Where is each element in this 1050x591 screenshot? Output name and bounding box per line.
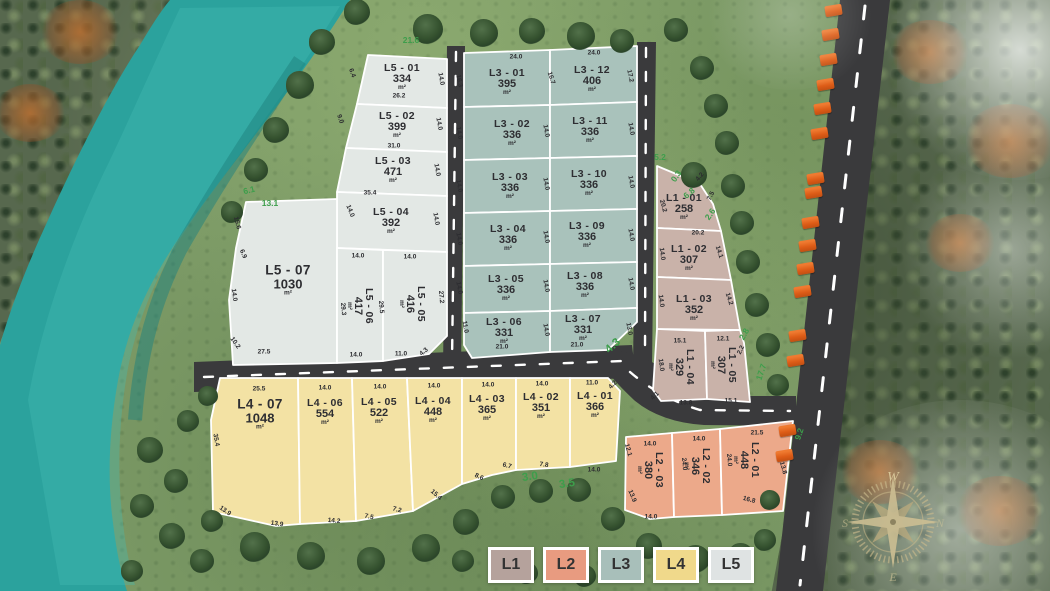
- dimension-label: 14.0: [454, 232, 463, 246]
- legend-item-L4: L4: [653, 547, 699, 583]
- dimension-label: 13.9: [218, 505, 232, 518]
- lot-label-L3-08: L3 - 08336m²: [567, 271, 603, 299]
- dimension-label: 14.0: [431, 212, 440, 226]
- dimension-label: 14.0: [541, 230, 550, 244]
- dimension-label: 13.8: [778, 461, 788, 475]
- dimension-label: 14.0: [536, 381, 549, 388]
- lot-label-L5-05: L5 - 05416m²: [398, 286, 426, 322]
- dimension-label: 24.0: [588, 50, 601, 57]
- dimension-label: 14.0: [588, 467, 601, 474]
- lot-label-L3-02: L3 - 02336m²: [494, 119, 530, 147]
- dimension-label: 14.0: [428, 383, 441, 390]
- dimension-label: 7.2: [392, 505, 403, 514]
- legend-label: L1: [502, 556, 521, 574]
- dimension-label: 8.6: [473, 472, 484, 482]
- dimension-label: 3.5: [558, 477, 576, 491]
- lot-label-L2-01: L2 - 01448m²: [732, 442, 760, 478]
- dimension-label: 7.8: [539, 461, 549, 469]
- dimension-label: 14.0: [350, 352, 363, 359]
- dimension-label: 35.4: [364, 190, 377, 197]
- dimension-label: 10.2: [229, 336, 242, 350]
- dimension-label: 21.5: [751, 430, 764, 437]
- dimension-label: 35.4: [211, 433, 220, 447]
- lot-label-L3-07: L3 - 07331m²: [565, 314, 601, 342]
- lot-label-L1-05: L1 - 05307m²: [709, 347, 737, 383]
- dimension-label: 17.2: [625, 69, 634, 83]
- dimension-label: 4.3: [418, 346, 429, 357]
- dimension-label: 20.2: [692, 230, 705, 237]
- dimension-label: 6.4: [347, 68, 357, 79]
- dimension-label: 14.0: [658, 247, 667, 261]
- dimension-label: 14.0: [352, 253, 365, 260]
- dimension-label: 16.3: [454, 74, 463, 88]
- dimension-label: 4.2: [694, 171, 705, 182]
- dimension-label: 11.0: [586, 380, 598, 387]
- compass-letter-left: S: [842, 516, 848, 530]
- dimension-label: 27.5: [258, 349, 271, 356]
- dimension-label: 21.0: [496, 344, 509, 351]
- lot-label-L1-04: L1 - 04329m²: [667, 349, 695, 385]
- lot-label-L3-05: L3 - 05336m²: [488, 274, 524, 302]
- legend-item-L2: L2: [543, 547, 589, 583]
- lot-label-L3-12: L3 - 12406m²: [574, 65, 610, 93]
- dimension-label: 4.3: [603, 336, 623, 356]
- lot-label-L4-06: L4 - 06554m²: [307, 398, 343, 426]
- compass-letter-right: N: [935, 516, 945, 530]
- dimension-label: 2.8: [737, 326, 752, 341]
- dimension-label: 14.0: [319, 385, 332, 392]
- legend-label: L4: [667, 556, 686, 574]
- lot-label-L1-02: L1 - 02307m²: [671, 244, 707, 272]
- legend-label: L5: [722, 556, 741, 574]
- dimension-label: 14.0: [626, 175, 635, 189]
- dimension-label: 14.2: [724, 292, 735, 306]
- lot-label-L1-03: L1 - 03352m²: [676, 294, 712, 322]
- dimension-label: 29.5: [377, 300, 385, 313]
- dimension-label: 3.0: [521, 470, 539, 484]
- legend-label: L3: [612, 556, 631, 574]
- dimension-label: 4.2: [607, 379, 618, 390]
- dimension-label: 13.0: [624, 322, 633, 336]
- dimension-label: 14.0: [454, 179, 463, 193]
- dimension-label: 15.1: [725, 398, 738, 405]
- dimension-label: 5.2: [654, 152, 666, 162]
- lot-label-L3-10: L3 - 10336m²: [571, 169, 607, 197]
- dimension-label: 21.6: [403, 35, 420, 45]
- dimension-label: 14.0: [374, 384, 387, 391]
- dimension-label: 15.6: [232, 216, 242, 230]
- lot-label-L4-07: L4 - 071048m²: [237, 398, 283, 431]
- dimension-label: 9.0: [335, 114, 344, 125]
- dimension-label: 11.0: [460, 320, 469, 333]
- lot-label-L4-05: L4 - 05522m²: [361, 397, 397, 425]
- dimension-label: 14.0: [541, 323, 550, 337]
- lot-label-L3-01: L3 - 01395m²: [489, 68, 525, 96]
- lot-label-L5-02: L5 - 02399m²: [379, 111, 415, 139]
- dimension-label: 14.0: [626, 277, 635, 291]
- dimension-label: 14.0: [436, 72, 445, 86]
- dimension-label: 12.1: [717, 336, 730, 343]
- dimension-label: 0.3: [669, 168, 684, 183]
- lot-label-L5-07: L5 - 071030m²: [265, 264, 311, 297]
- legend-label: L2: [557, 556, 576, 574]
- site-plan-map: L5 - 01334m²L5 - 02399m²L5 - 03471m²L5 -…: [0, 0, 1050, 591]
- dimension-label: 14.0: [657, 294, 666, 308]
- compass-letter-top: W: [887, 470, 900, 485]
- dimension-label: 14.0: [230, 288, 239, 302]
- lot-label-L5-03: L5 - 03471m²: [375, 156, 411, 184]
- dimension-label: 27.2: [437, 290, 445, 303]
- dimension-label: 13.9: [270, 520, 284, 529]
- dimension-label: 6.1: [242, 184, 256, 197]
- lot-label-L4-04: L4 - 04448m²: [415, 396, 451, 424]
- dimension-label: 13.1: [262, 198, 279, 208]
- dimension-label: 18.0: [657, 358, 666, 372]
- dimension-label: 14.0: [482, 382, 495, 389]
- dimension-label: 14.0: [541, 279, 550, 293]
- dimension-label: 11.0: [395, 351, 407, 358]
- lot-label-L5-04: L5 - 04392m²: [373, 207, 409, 235]
- lot-label-L2-03: L2 - 03380m²: [636, 452, 664, 488]
- dimension-label: 31.0: [388, 143, 401, 150]
- dimension-label: 14.0: [404, 254, 417, 261]
- dimension-label: 15.1: [674, 338, 687, 345]
- dimension-label: 25.5: [253, 386, 266, 393]
- lot-label-L3-11: L3 - 11336m²: [572, 116, 607, 144]
- dimension-label: 6.9: [238, 248, 248, 259]
- lot-label-L5-06: L5 - 06417m²: [346, 288, 374, 324]
- dimension-label: 14.0: [644, 441, 657, 448]
- dimension-label: 12.1: [623, 443, 633, 457]
- dimension-label: 14.0: [693, 436, 706, 443]
- legend-item-L3: L3: [598, 547, 644, 583]
- lot-label-L3-06: L3 - 06331m²: [486, 317, 522, 345]
- dimension-label: 7.5: [706, 190, 716, 201]
- dimension-label: 14.0: [432, 163, 441, 177]
- dimension-label: 14.0: [454, 126, 463, 140]
- lot-label-L4-01: L4 - 01366m²: [577, 391, 613, 419]
- compass-rose: W N E S: [835, 464, 955, 584]
- dimension-label: 29.3: [339, 302, 347, 315]
- dimension-label: 13.8: [680, 400, 693, 407]
- dimension-label: 14.0: [541, 124, 550, 138]
- dimension-label: 14.0: [626, 122, 635, 136]
- dimension-label: 16.7: [546, 71, 557, 85]
- dimension-label: 24.0: [725, 453, 733, 466]
- dimension-label: 21.0: [571, 342, 584, 349]
- lot-label-L4-02: L4 - 02351m²: [523, 392, 559, 420]
- lot-label-L3-09: L3 - 09336m²: [569, 221, 605, 249]
- lot-label-L3-04: L3 - 04336m²: [490, 224, 526, 252]
- compass-letter-bottom: E: [888, 570, 897, 584]
- legend: L1L2L3L4L5: [488, 547, 754, 583]
- dimension-label: 14.0: [541, 177, 550, 191]
- dimension-label: 14.0: [645, 514, 658, 521]
- dimension-label: 15.4: [429, 488, 443, 502]
- dimension-label: 14.2: [327, 517, 340, 525]
- dimension-label: 14.1: [714, 245, 725, 259]
- dimension-label: 2.6: [703, 206, 718, 221]
- dimension-label: 14.0: [434, 117, 443, 131]
- legend-item-L5: L5: [708, 547, 754, 583]
- dimension-label: 9.2: [792, 427, 805, 441]
- legend-item-L1: L1: [488, 547, 534, 583]
- dimension-label: 6.7: [502, 461, 513, 470]
- dimension-label: 4.1: [649, 390, 660, 401]
- dimension-label: 17.7: [754, 363, 769, 382]
- dimension-label: 13.9: [626, 489, 637, 503]
- lot-label-L5-01: L5 - 01334m²: [384, 63, 420, 91]
- dimension-label: 14.0: [454, 281, 463, 295]
- dimension-label: 7.5: [364, 513, 374, 522]
- dimension-label: 14.0: [626, 228, 635, 242]
- dimension-label: 16.8: [742, 495, 756, 505]
- dimension-label: 14.0: [344, 204, 355, 218]
- dimension-label: 24.0: [510, 54, 523, 61]
- dimension-label: 26.2: [393, 93, 406, 100]
- lot-label-L3-03: L3 - 03336m²: [492, 172, 528, 200]
- dimension-label: 24.0: [680, 457, 688, 470]
- lot-label-L4-03: L4 - 03365m²: [469, 394, 505, 422]
